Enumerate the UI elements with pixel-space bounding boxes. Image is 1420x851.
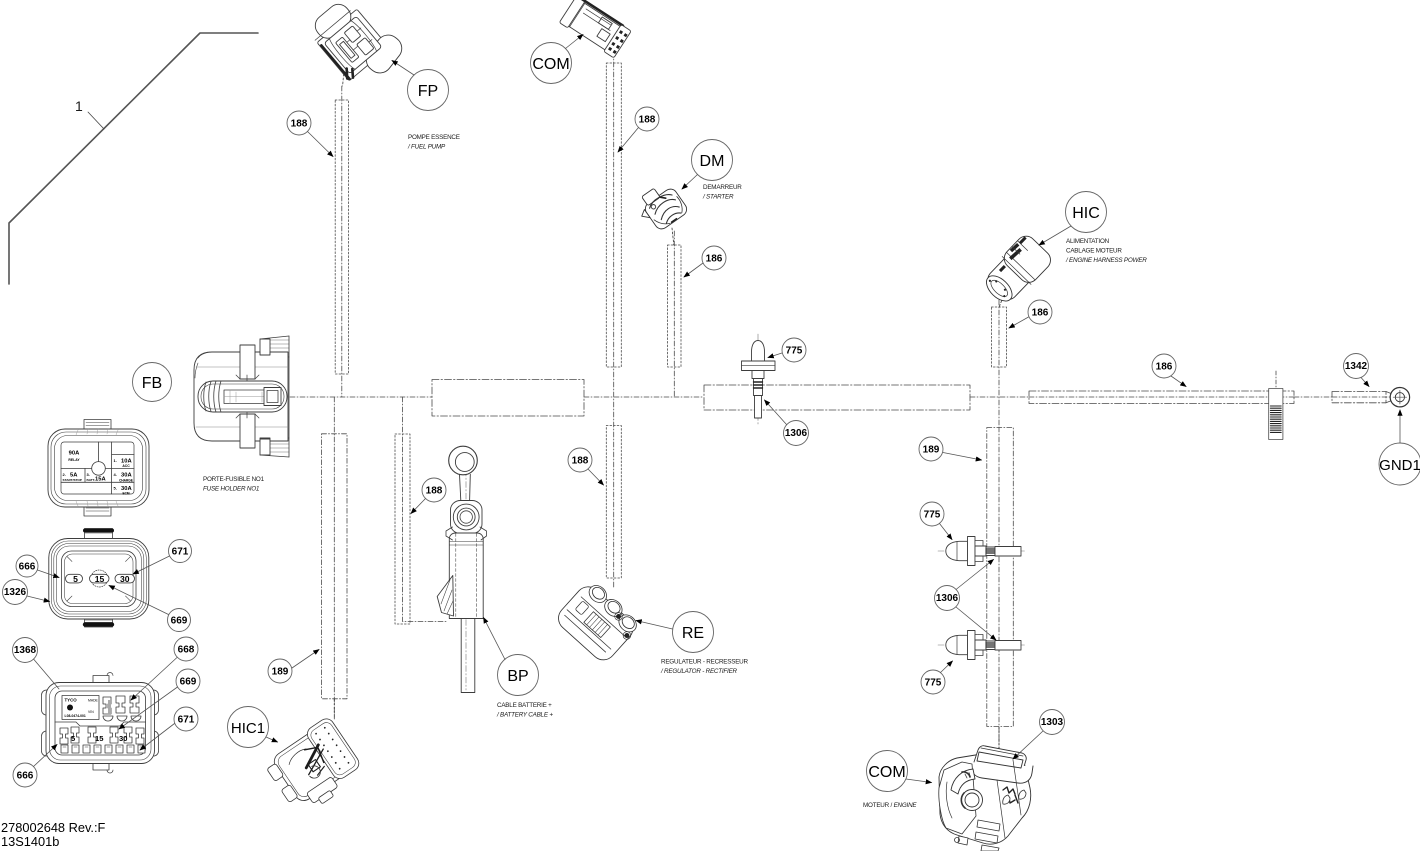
svg-text:MOTEUR / ENGINE: MOTEUR / ENGINE [863, 802, 917, 809]
svg-text:ECM: ECM [122, 492, 129, 496]
svg-text:/ ENGINE HARNESS POWER: / ENGINE HARNESS POWER [1065, 257, 1147, 264]
svg-text:671: 671 [178, 715, 195, 726]
svg-text:3.: 3. [87, 472, 90, 477]
svg-text:COM: COM [868, 764, 905, 781]
svg-text:15A: 15A [95, 477, 106, 483]
svg-text:669: 669 [180, 677, 197, 688]
svg-text:2.: 2. [63, 472, 66, 477]
svg-text:RELAY: RELAY [68, 458, 80, 462]
svg-text:ALIMENTATION: ALIMENTATION [1066, 238, 1110, 245]
svg-text:FB: FB [142, 375, 162, 392]
svg-text:TYCO: TYCO [65, 698, 78, 703]
svg-text:BP: BP [507, 668, 528, 685]
svg-text:1306: 1306 [936, 593, 959, 604]
svg-text:278002648 Rev.:F: 278002648 Rev.:F [1, 820, 106, 835]
svg-text:15: 15 [95, 734, 104, 743]
svg-text:L08-0474-001: L08-0474-001 [65, 714, 86, 718]
svg-text:CABLE BATTERIE +: CABLE BATTERIE + [497, 702, 552, 709]
svg-text:188: 188 [639, 115, 656, 126]
svg-text:666: 666 [19, 562, 36, 573]
svg-text:1342: 1342 [1345, 361, 1368, 372]
svg-text:1303: 1303 [1041, 717, 1064, 728]
svg-text:DEMARREUR: DEMARREUR [703, 184, 742, 191]
svg-text:30: 30 [120, 574, 130, 584]
svg-text:1326: 1326 [4, 587, 27, 598]
svg-text:189: 189 [272, 667, 289, 678]
svg-text:VIN: VIN [88, 710, 94, 714]
svg-text:188: 188 [291, 119, 308, 130]
svg-text:COM: COM [532, 56, 569, 73]
svg-text:POMPE ESSENCE: POMPE ESSENCE [408, 134, 460, 141]
svg-text:15: 15 [95, 574, 105, 584]
svg-text:RE: RE [682, 625, 704, 642]
svg-text:PORTE-FUSIBLE NO1: PORTE-FUSIBLE NO1 [203, 476, 265, 483]
svg-text:1: 1 [75, 98, 83, 114]
svg-text:BATT.: BATT. [87, 478, 96, 482]
svg-text:186: 186 [706, 254, 723, 265]
svg-text:GND1: GND1 [1379, 457, 1420, 474]
svg-text:5: 5 [73, 574, 78, 584]
svg-text:DM: DM [700, 153, 725, 170]
svg-text:90A: 90A [69, 451, 80, 457]
svg-text:13S1401b: 13S1401b [1, 834, 59, 849]
svg-text:775: 775 [786, 346, 803, 357]
svg-text:1368: 1368 [14, 645, 37, 656]
svg-text:MADE: MADE [88, 699, 99, 703]
svg-text:186: 186 [1156, 362, 1173, 373]
svg-text:HIC1: HIC1 [231, 720, 265, 737]
svg-text:671: 671 [172, 547, 189, 558]
svg-text:START/STOP: START/STOP [63, 478, 82, 482]
svg-text:668: 668 [178, 645, 195, 656]
svg-text:1306: 1306 [785, 428, 808, 439]
svg-text:5.: 5. [114, 486, 117, 491]
svg-text:/ STARTER: / STARTER [702, 194, 734, 201]
svg-text:30: 30 [119, 734, 127, 743]
svg-text:/ REGULATOR - RECTIFIER: / REGULATOR - RECTIFIER [660, 668, 738, 675]
svg-text:FUSE HOLDER NO1: FUSE HOLDER NO1 [203, 486, 259, 493]
svg-text:666: 666 [17, 771, 34, 782]
svg-text:/ BATTERY CABLE +: / BATTERY CABLE + [496, 712, 553, 719]
svg-text:1.: 1. [114, 458, 117, 463]
svg-text:189: 189 [923, 445, 940, 456]
svg-text:186: 186 [1032, 308, 1049, 319]
svg-text:775: 775 [925, 678, 942, 689]
svg-text:ACC: ACC [122, 464, 130, 468]
svg-text:775: 775 [924, 510, 941, 521]
svg-text:CABLAGE MOTEUR: CABLAGE MOTEUR [1066, 248, 1122, 255]
svg-text:FP: FP [418, 83, 438, 100]
svg-text:CHARGE: CHARGE [119, 479, 133, 483]
svg-text:669: 669 [171, 616, 188, 627]
svg-text:188: 188 [426, 486, 443, 497]
svg-text:/ FUEL PUMP: / FUEL PUMP [407, 144, 446, 151]
svg-text:HIC: HIC [1072, 205, 1100, 222]
svg-text:REGULATEUR - RECRESSEUR: REGULATEUR - RECRESSEUR [661, 659, 749, 666]
svg-text:188: 188 [572, 456, 589, 467]
svg-text:4.: 4. [114, 472, 117, 477]
